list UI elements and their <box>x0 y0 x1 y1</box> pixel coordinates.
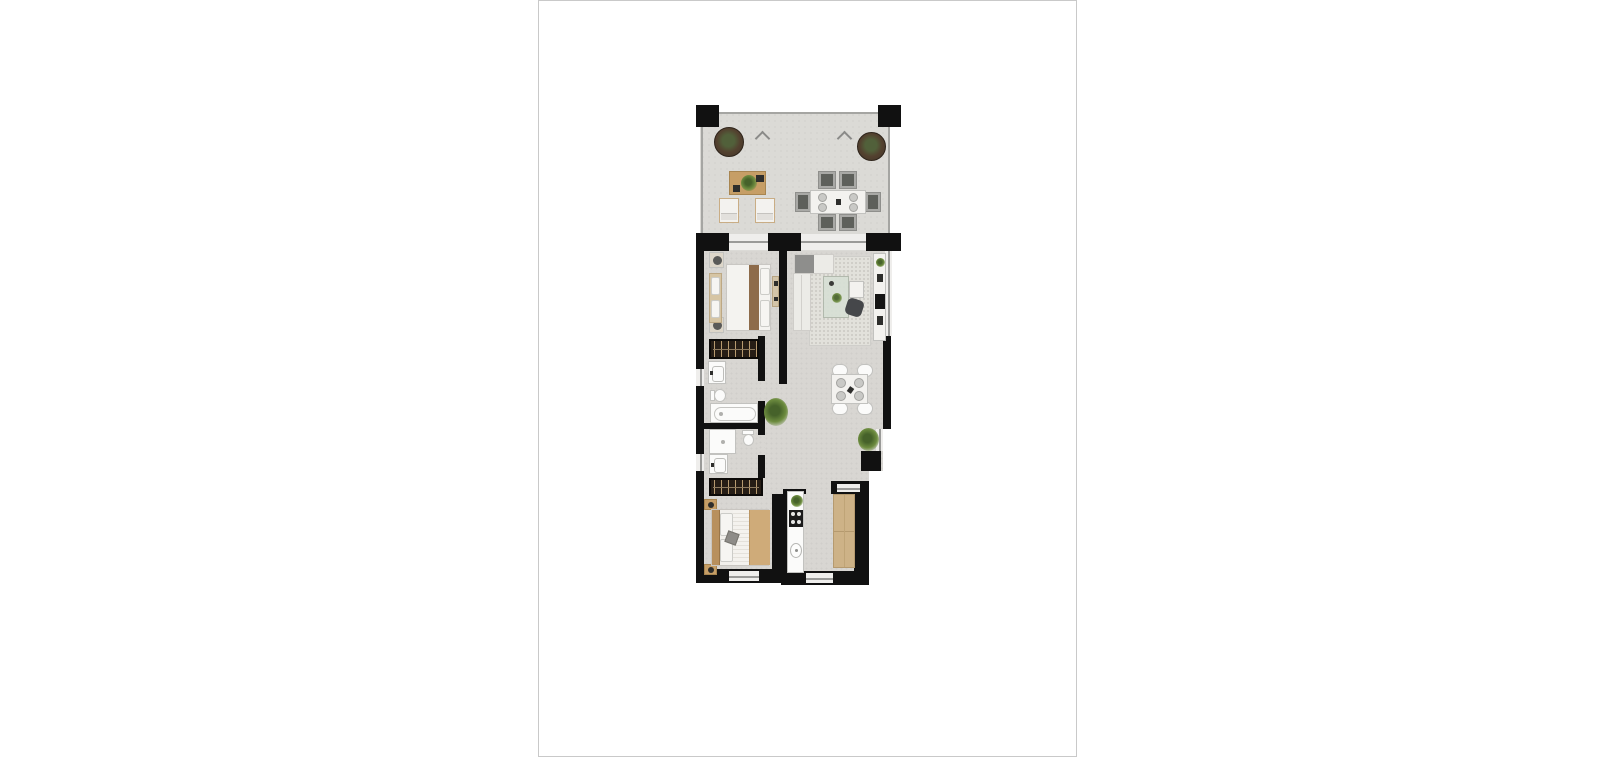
glass-line <box>888 251 890 336</box>
bed-runner-brown <box>749 265 759 330</box>
wall-left <box>696 251 704 583</box>
sink-basin <box>712 366 724 382</box>
plate <box>818 193 827 202</box>
bed-pillow <box>760 268 770 295</box>
living-sliding-door <box>801 234 866 250</box>
wardrobe-rod <box>713 349 755 350</box>
terrace-chair-bottom-2 <box>839 214 857 231</box>
faucet-dot <box>795 549 798 552</box>
sofa-blanket-gray <box>795 255 814 273</box>
console-decor <box>877 316 883 325</box>
wall-master-kitchen <box>772 494 783 583</box>
counter-seam <box>844 495 845 567</box>
table-tray <box>733 185 740 192</box>
table-centerpiece <box>836 199 841 205</box>
shower-tray <box>709 429 736 454</box>
lounge-chair-1 <box>719 198 739 223</box>
terrace-chair-left <box>795 192 811 212</box>
master-bed <box>711 509 769 566</box>
wall-kitchen-right <box>854 481 869 579</box>
bathroom1-window <box>696 369 704 386</box>
plate <box>849 193 858 202</box>
lamp <box>708 567 714 573</box>
kitchen-window <box>837 484 860 492</box>
chair-cushion <box>821 217 833 228</box>
glass-line <box>700 454 702 471</box>
console-decor <box>877 274 883 282</box>
nightstand <box>709 252 724 268</box>
exterior-white-bottom-right <box>869 471 883 587</box>
chair-cushion <box>842 217 854 228</box>
wardrobe-rod <box>713 487 759 488</box>
plate <box>849 203 858 212</box>
bathroom1-vanity-sink <box>708 361 726 384</box>
shower-drain <box>721 440 725 444</box>
bathroom1-door-opening <box>758 381 765 401</box>
glass-line <box>837 488 860 490</box>
toilet-bowl <box>714 389 726 402</box>
duvet-tan <box>749 510 770 565</box>
burner <box>797 512 801 516</box>
living-room-window <box>885 251 892 336</box>
bathroom2-vanity-sink <box>709 454 728 474</box>
wall-bedroom2-corner <box>758 336 765 359</box>
wall-band-right <box>866 233 901 251</box>
console-plant <box>876 258 885 267</box>
bedroom2-bed <box>726 264 771 331</box>
table-centerpiece <box>847 386 855 394</box>
wall-band-left <box>696 233 729 251</box>
sofa-chaise-top <box>794 254 834 274</box>
toilet-bowl <box>743 434 754 446</box>
tv-screen <box>875 294 885 309</box>
bed-pillow <box>760 300 770 327</box>
round-planter-left <box>714 127 744 157</box>
bathtub <box>710 403 758 423</box>
terrace-chair-right <box>865 192 881 212</box>
table-plant <box>741 175 757 191</box>
exterior-white-right <box>883 429 901 587</box>
bathroom2-door-opening <box>758 435 765 455</box>
column-top-left <box>696 105 719 127</box>
counter-plant <box>791 495 803 507</box>
chair-backrest <box>721 213 737 220</box>
burner <box>797 520 801 524</box>
faucet <box>710 371 713 375</box>
bedroom2-bench <box>709 273 722 323</box>
sofa-left-section <box>793 273 811 331</box>
wall-right-step-corner <box>861 451 881 471</box>
bench-cushion <box>711 300 720 318</box>
bedroom-window <box>729 234 768 250</box>
terrace-railing-left <box>701 112 703 233</box>
chair-cushion <box>798 195 808 209</box>
wardrobe-2 <box>709 478 763 496</box>
plate <box>854 391 864 401</box>
tv-console <box>873 253 886 341</box>
glass-line <box>729 576 759 578</box>
plate <box>854 378 864 388</box>
bathroom2-window <box>696 454 704 471</box>
plate <box>836 378 846 388</box>
dresser-decor <box>774 281 778 286</box>
lounge-chair-2 <box>755 198 775 223</box>
headboard-wood <box>712 510 720 565</box>
bedroom2-dresser <box>772 276 779 307</box>
column-top-right <box>878 105 901 127</box>
kitchen-oak-counter <box>833 494 855 568</box>
burner <box>791 512 795 516</box>
table-decor <box>829 281 834 286</box>
glass-line <box>700 369 702 386</box>
glass-line <box>806 578 833 580</box>
terrace-railing-top <box>700 112 897 114</box>
glass-line <box>879 429 881 451</box>
sofa-seat-line <box>801 275 802 330</box>
faucet <box>711 463 714 467</box>
hallway-plant <box>764 398 788 426</box>
dining-table <box>831 374 868 404</box>
glass-line <box>801 241 866 243</box>
wall-right-mid <box>883 336 891 429</box>
wardrobe-1 <box>709 339 759 359</box>
bathroom2-toilet <box>739 430 758 446</box>
side-table <box>849 281 864 298</box>
round-planter-right <box>857 132 886 161</box>
floor-plan-page <box>538 0 1077 757</box>
chair-cushion <box>868 195 878 209</box>
terrace-chair-bottom-1 <box>818 214 836 231</box>
kitchen-door <box>806 573 833 583</box>
master-bedroom-window <box>729 571 759 581</box>
cooktop <box>789 510 803 527</box>
wall-bathrooms-right <box>758 359 765 478</box>
wall-band-mid <box>768 233 801 251</box>
dining-plant <box>858 428 879 451</box>
chair-cushion <box>821 174 833 186</box>
terrace-coffee-table <box>729 171 766 195</box>
sink-basin <box>714 458 726 473</box>
kitchen-sink <box>790 543 802 558</box>
terrace-chair-top-2 <box>839 171 857 189</box>
chair-cushion <box>842 174 854 186</box>
dresser-decor <box>774 297 778 301</box>
kitchen-counter-strip <box>787 491 804 573</box>
terrace-railing-right <box>888 112 890 233</box>
plate <box>818 203 827 212</box>
lamp <box>713 256 722 265</box>
terrace-dining-table <box>810 190 866 214</box>
plate <box>836 391 846 401</box>
bench-cushion <box>711 277 720 295</box>
glass-line <box>729 241 768 243</box>
terrace-chair-top-1 <box>818 171 836 189</box>
lamp <box>708 502 714 508</box>
chair-backrest <box>757 213 773 220</box>
screenshot-canvas <box>0 0 1620 760</box>
table-tray <box>756 175 764 182</box>
wall-bedroom2-living <box>779 251 787 384</box>
bathroom1-toilet <box>710 388 726 403</box>
table-plant <box>832 293 842 303</box>
floor-plan <box>696 105 901 587</box>
bathtub-drain <box>719 412 723 416</box>
burner <box>791 520 795 524</box>
